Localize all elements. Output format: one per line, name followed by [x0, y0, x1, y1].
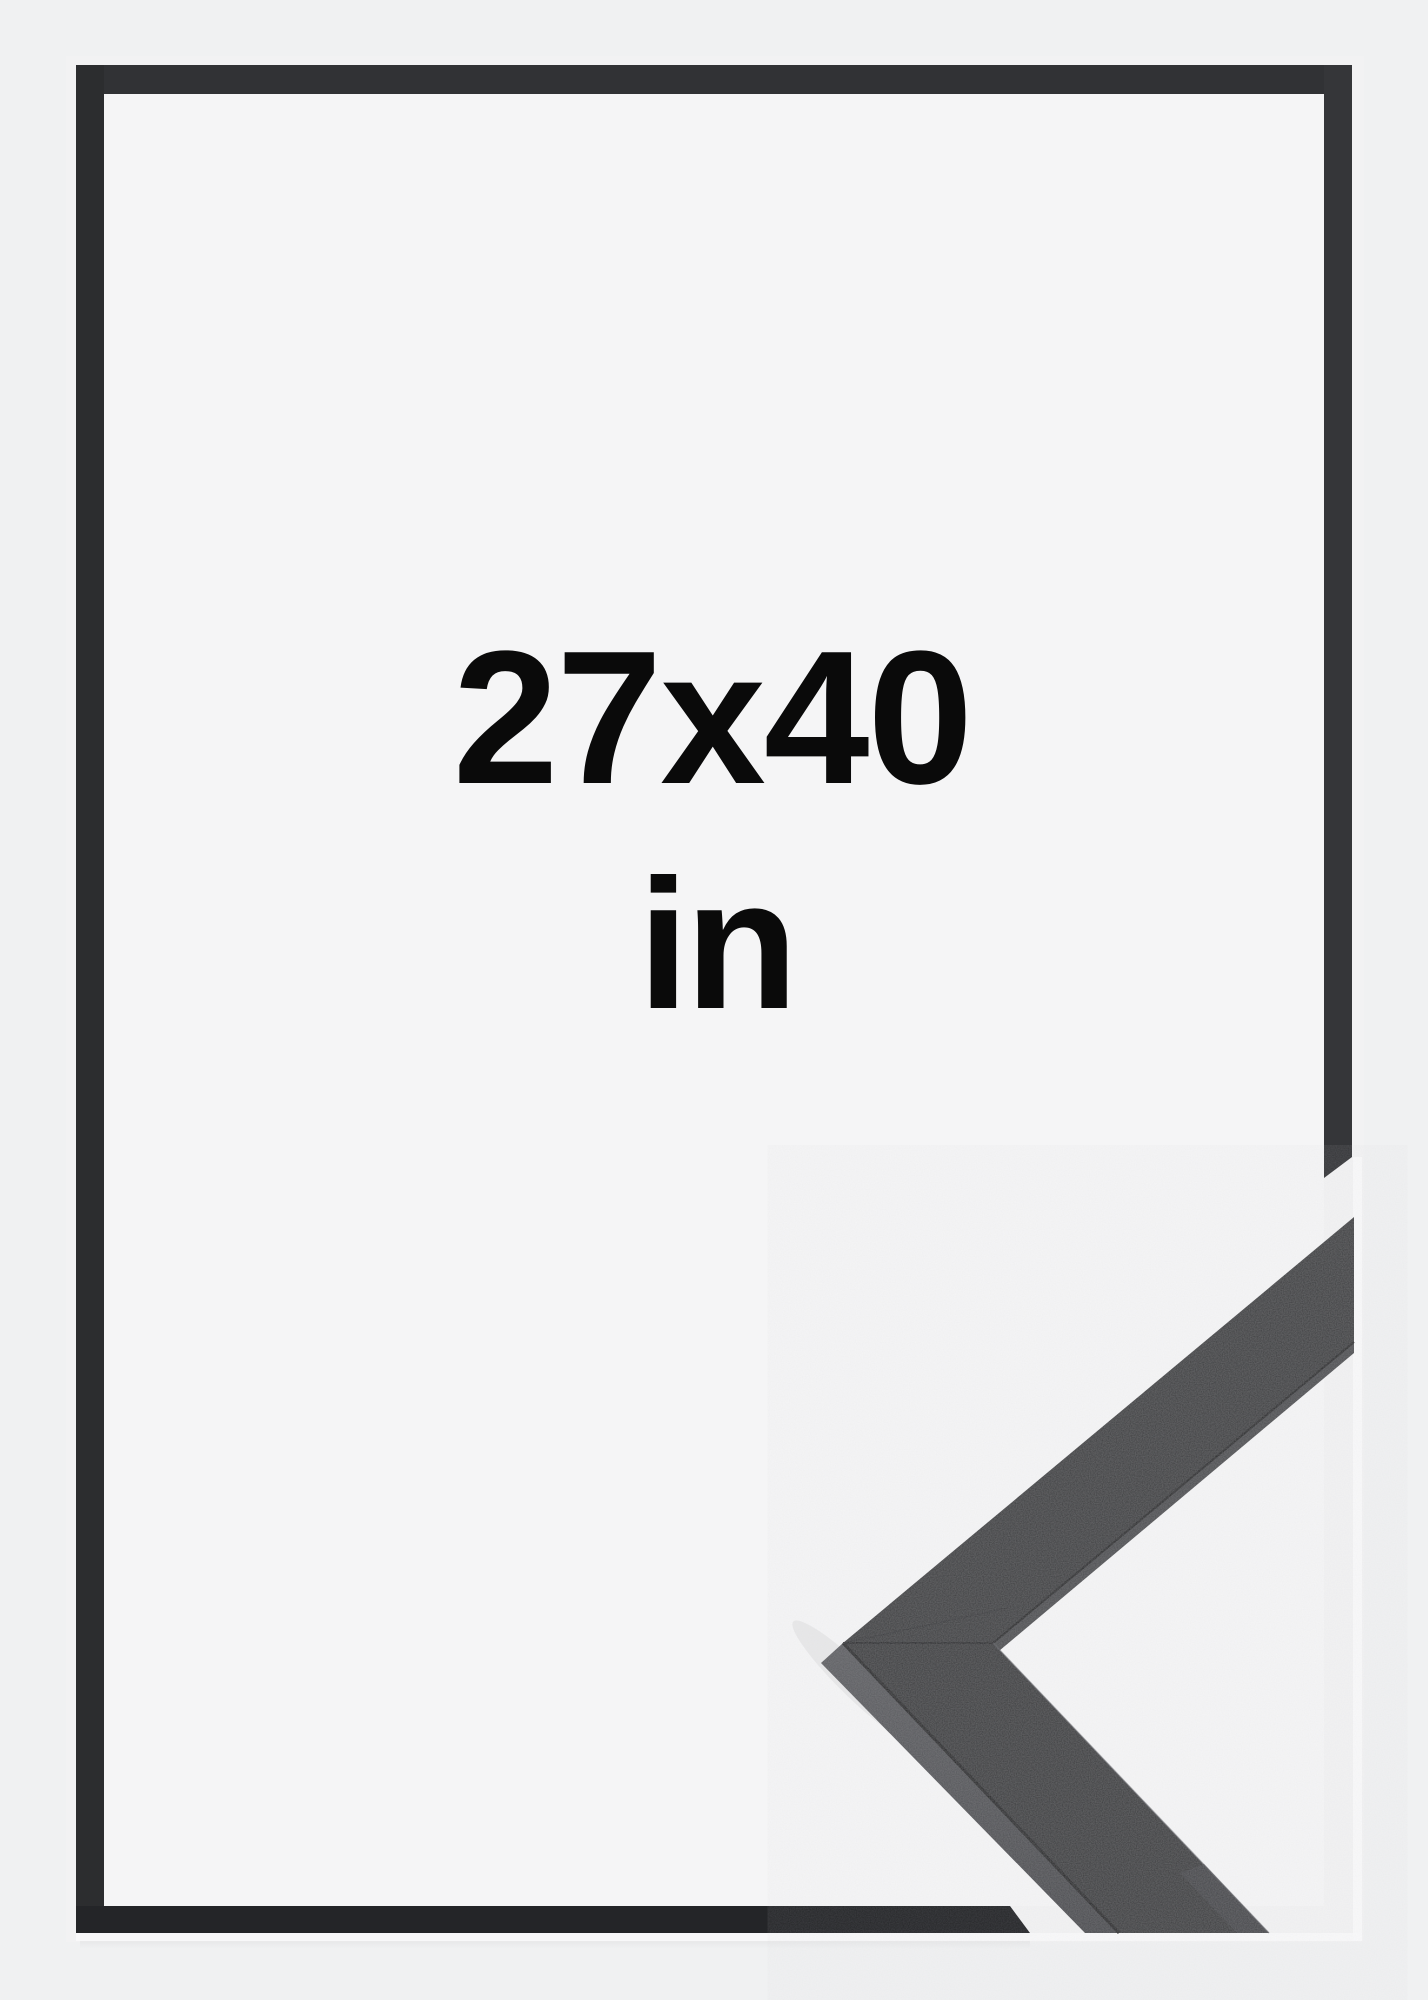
frame-bottom-bar — [76, 1906, 1030, 1933]
product-image: 27x40 in — [0, 0, 1428, 2000]
unit-label: in — [638, 842, 794, 1048]
frame-left-bar — [76, 65, 104, 1933]
size-label: 27x40 — [453, 612, 971, 824]
canvas-sliver-right — [1353, 1157, 1362, 1941]
frame-top-bar — [76, 65, 1352, 94]
frame-right-bar — [1324, 65, 1352, 1178]
frame-illustration: 27x40 in — [0, 0, 1428, 2000]
canvas-sliver-bottom — [76, 1933, 1362, 1941]
